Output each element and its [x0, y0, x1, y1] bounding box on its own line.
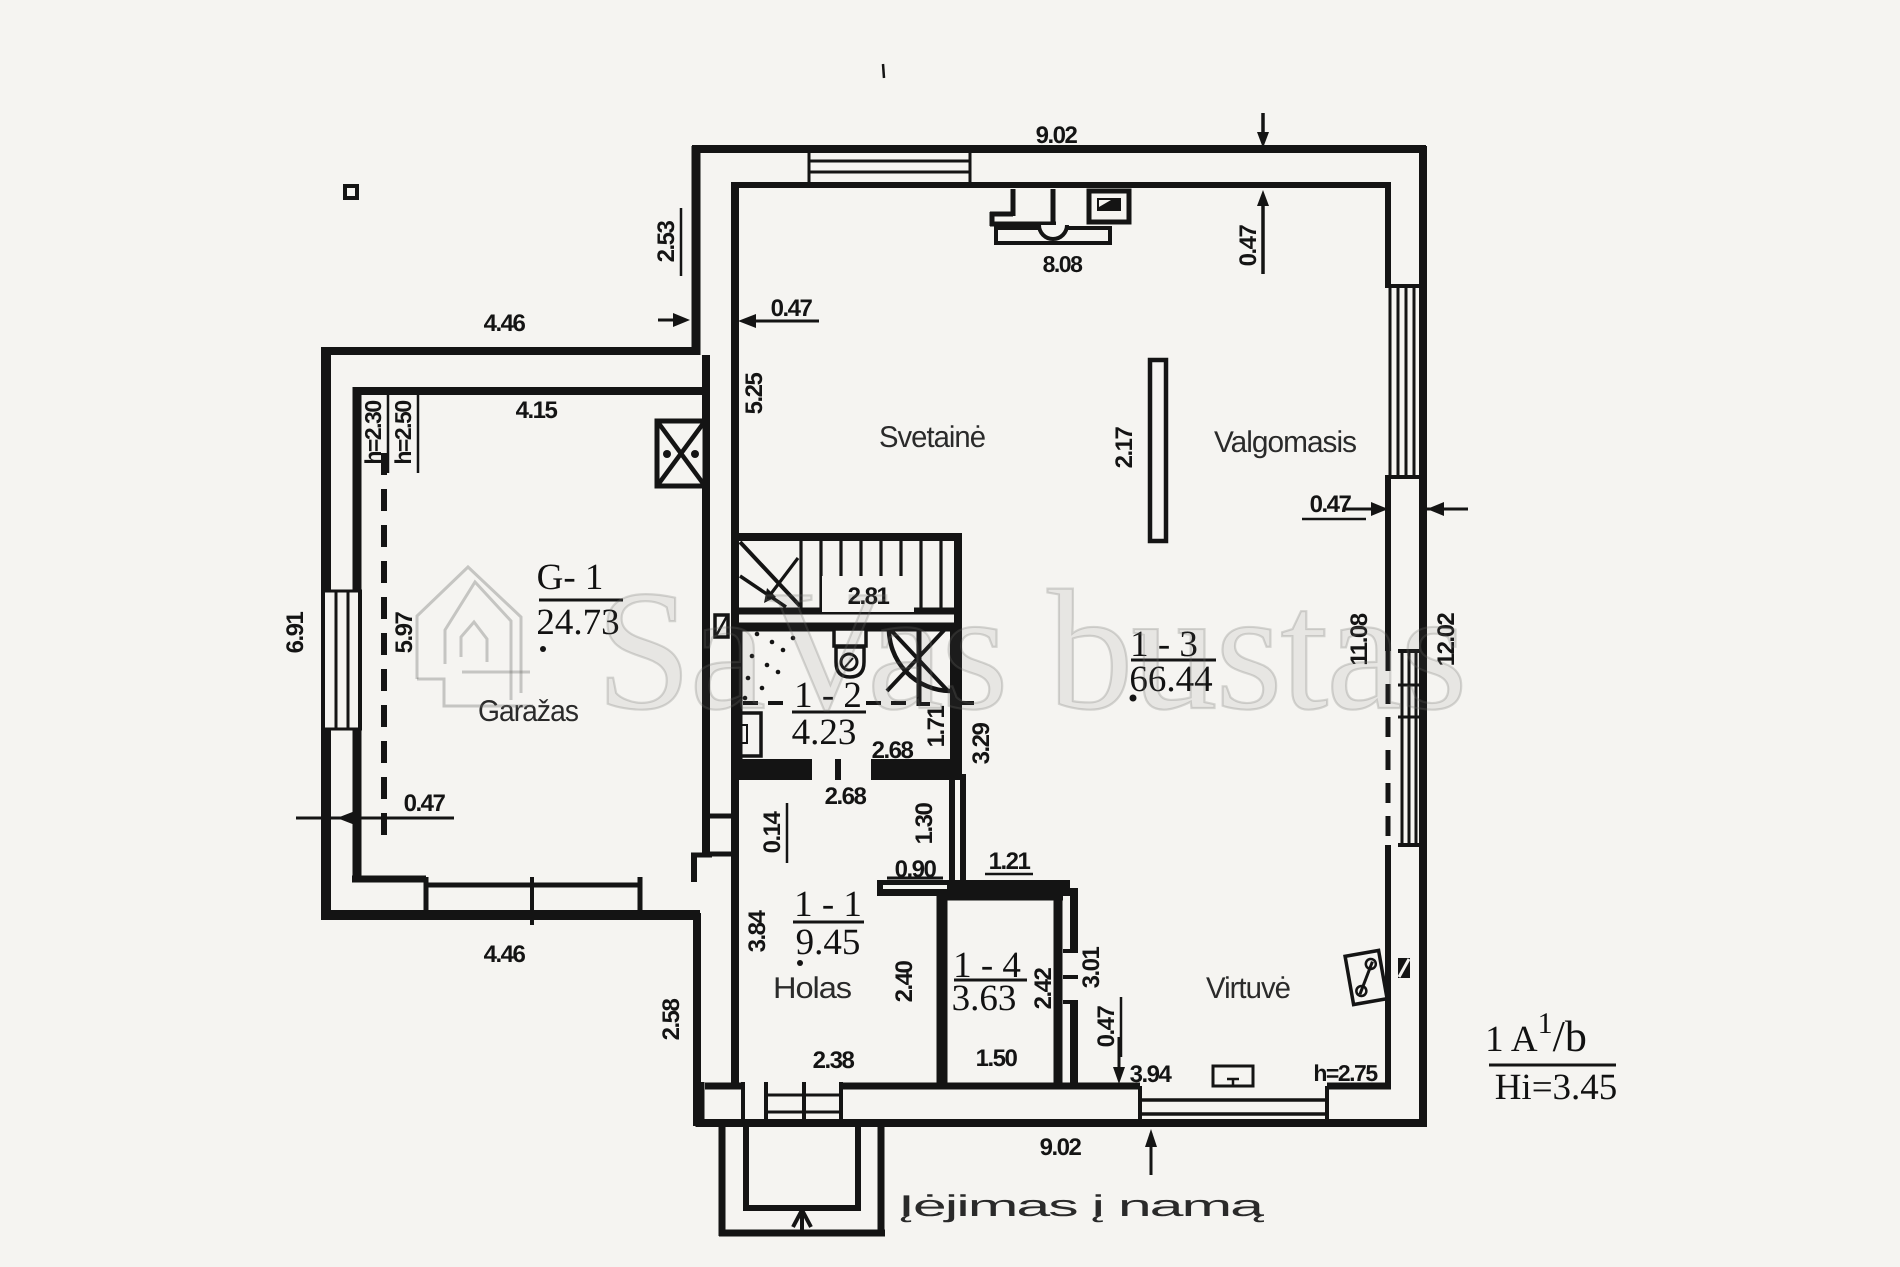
- svg-text:0.47: 0.47: [404, 790, 446, 817]
- svg-text:1.30: 1.30: [911, 802, 938, 844]
- svg-text:0.47: 0.47: [771, 295, 813, 322]
- svg-text:2.53: 2.53: [653, 220, 680, 262]
- svg-text:2.38: 2.38: [813, 1047, 855, 1074]
- svg-text:Valgomasis: Valgomasis: [1214, 426, 1356, 459]
- svg-text:3.94: 3.94: [1130, 1061, 1173, 1088]
- svg-text:Holas: Holas: [773, 972, 851, 1005]
- svg-text:h=2.30: h=2.30: [360, 401, 386, 465]
- svg-text:2.17: 2.17: [1111, 426, 1138, 468]
- svg-text:0.14: 0.14: [759, 810, 786, 853]
- svg-text:2.58: 2.58: [658, 998, 685, 1040]
- svg-text:h=2.75: h=2.75: [1313, 1060, 1378, 1086]
- svg-text:1 - 1: 1 - 1: [794, 884, 862, 925]
- svg-text:9.45: 9.45: [796, 922, 861, 963]
- svg-text:0.47: 0.47: [1235, 224, 1262, 266]
- svg-text:9.02: 9.02: [1036, 122, 1078, 149]
- svg-text:Svetainė: Svetainė: [879, 421, 985, 454]
- svg-text:0.47: 0.47: [1310, 491, 1352, 518]
- svg-text:9.02: 9.02: [1040, 1134, 1082, 1161]
- svg-text:4.46: 4.46: [484, 310, 526, 337]
- svg-text:2.40: 2.40: [891, 960, 918, 1002]
- svg-text:Garažas: Garažas: [478, 695, 578, 728]
- svg-text:Įėjimas į namą: Įėjimas į namą: [898, 1190, 1265, 1223]
- svg-text:6.91: 6.91: [282, 611, 309, 653]
- svg-text:G- 1: G- 1: [537, 557, 604, 598]
- svg-text:2.68: 2.68: [825, 783, 867, 810]
- svg-text:8.08: 8.08: [1043, 251, 1083, 277]
- svg-text:4.46: 4.46: [484, 941, 526, 968]
- svg-text:3.01: 3.01: [1078, 946, 1105, 988]
- svg-text:4.15: 4.15: [516, 397, 558, 424]
- svg-text:Virtuvė: Virtuvė: [1206, 972, 1290, 1005]
- svg-text:1.50: 1.50: [976, 1045, 1018, 1072]
- svg-text:3.84: 3.84: [744, 909, 771, 952]
- svg-text:5.97: 5.97: [391, 611, 418, 653]
- svg-text:3.63: 3.63: [952, 978, 1017, 1019]
- svg-text:2.42: 2.42: [1030, 967, 1057, 1009]
- svg-text:0.47: 0.47: [1093, 1005, 1120, 1047]
- svg-text:5.25: 5.25: [741, 372, 768, 414]
- svg-text:h=2.50: h=2.50: [390, 401, 416, 465]
- svg-text:SaVas bustas: SaVas bustas: [596, 556, 1465, 746]
- svg-text:1.21: 1.21: [989, 848, 1031, 875]
- svg-text:Hi=3.45: Hi=3.45: [1495, 1067, 1618, 1108]
